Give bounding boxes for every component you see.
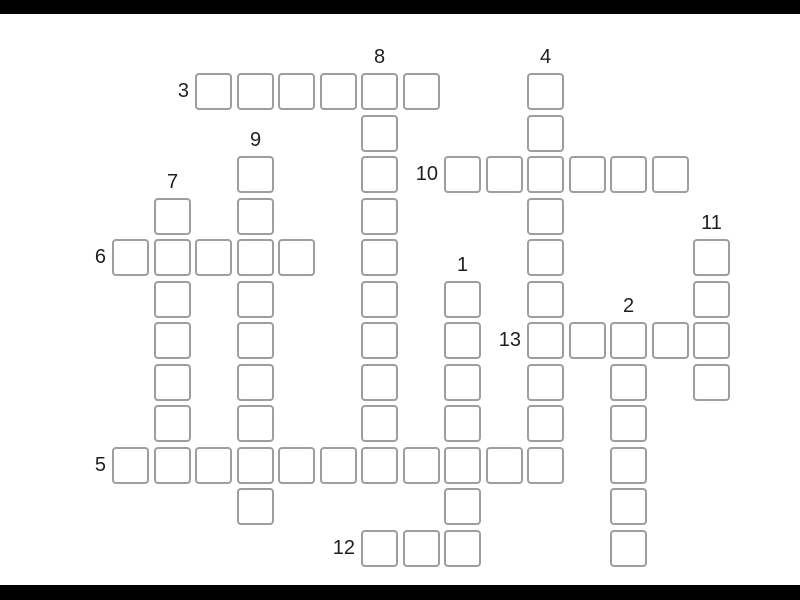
clue-number-label: 3 (153, 73, 189, 110)
clue-number-label: 5 (70, 447, 106, 484)
crossword-cell[interactable] (237, 156, 274, 193)
crossword-cell[interactable] (486, 447, 523, 484)
clue-number-label: 11 (693, 212, 730, 234)
crossword-cell[interactable] (361, 156, 398, 193)
crossword-cell[interactable] (444, 322, 481, 359)
crossword-board: 38491076111132512 (0, 0, 800, 600)
crossword-cell[interactable] (237, 198, 274, 235)
crossword-cell[interactable] (278, 239, 315, 276)
clue-number-label: 7 (154, 171, 191, 193)
crossword-cell[interactable] (361, 322, 398, 359)
crossword-cell[interactable] (154, 239, 191, 276)
crossword-cell[interactable] (237, 322, 274, 359)
clue-number-label: 4 (527, 46, 564, 68)
crossword-cell[interactable] (610, 488, 647, 525)
crossword-cell[interactable] (403, 73, 440, 110)
crossword-cell[interactable] (361, 405, 398, 442)
crossword-cell[interactable] (527, 73, 564, 110)
crossword-cell[interactable] (361, 198, 398, 235)
crossword-cell[interactable] (444, 405, 481, 442)
crossword-cell[interactable] (154, 198, 191, 235)
crossword-cell[interactable] (652, 322, 689, 359)
crossword-cell[interactable] (693, 239, 730, 276)
crossword-grid: 38491076111132512 (0, 0, 800, 600)
crossword-cell[interactable] (320, 73, 357, 110)
crossword-cell[interactable] (527, 156, 564, 193)
crossword-cell[interactable] (652, 156, 689, 193)
crossword-cell[interactable] (154, 447, 191, 484)
crossword-cell[interactable] (444, 488, 481, 525)
clue-number-label: 6 (70, 239, 106, 276)
crossword-cell[interactable] (444, 281, 481, 318)
crossword-cell[interactable] (361, 447, 398, 484)
crossword-cell[interactable] (154, 405, 191, 442)
crossword-cell[interactable] (154, 281, 191, 318)
crossword-cell[interactable] (154, 364, 191, 401)
crossword-cell[interactable] (237, 447, 274, 484)
crossword-cell[interactable] (527, 281, 564, 318)
crossword-cell[interactable] (320, 447, 357, 484)
crossword-cell[interactable] (527, 364, 564, 401)
letterbox-bottom (0, 585, 800, 600)
crossword-cell[interactable] (195, 447, 232, 484)
crossword-cell[interactable] (195, 239, 232, 276)
crossword-cell[interactable] (278, 73, 315, 110)
clue-number-label: 9 (237, 129, 274, 151)
crossword-cell[interactable] (486, 156, 523, 193)
crossword-cell[interactable] (361, 364, 398, 401)
crossword-cell[interactable] (444, 156, 481, 193)
crossword-cell[interactable] (610, 322, 647, 359)
clue-number-label: 2 (610, 295, 647, 317)
crossword-cell[interactable] (237, 239, 274, 276)
crossword-cell[interactable] (237, 281, 274, 318)
crossword-cell[interactable] (112, 239, 149, 276)
clue-number-label: 12 (319, 530, 355, 567)
crossword-cell[interactable] (527, 115, 564, 152)
crossword-cell[interactable] (693, 322, 730, 359)
clue-number-label: 8 (361, 46, 398, 68)
crossword-cell[interactable] (527, 198, 564, 235)
crossword-cell[interactable] (569, 156, 606, 193)
crossword-cell[interactable] (361, 239, 398, 276)
crossword-cell[interactable] (569, 322, 606, 359)
crossword-cell[interactable] (610, 364, 647, 401)
letterbox-top (0, 0, 800, 14)
crossword-cell[interactable] (237, 73, 274, 110)
clue-number-label: 1 (444, 254, 481, 276)
crossword-cell[interactable] (444, 447, 481, 484)
crossword-cell[interactable] (610, 447, 647, 484)
crossword-cell[interactable] (610, 405, 647, 442)
crossword-cell[interactable] (693, 281, 730, 318)
crossword-cell[interactable] (444, 364, 481, 401)
crossword-cell[interactable] (527, 322, 564, 359)
crossword-cell[interactable] (361, 530, 398, 567)
crossword-cell[interactable] (112, 447, 149, 484)
crossword-cell[interactable] (693, 364, 730, 401)
crossword-cell[interactable] (278, 447, 315, 484)
crossword-cell[interactable] (237, 364, 274, 401)
clue-number-label: 13 (485, 322, 521, 359)
crossword-cell[interactable] (154, 322, 191, 359)
crossword-cell[interactable] (195, 73, 232, 110)
crossword-cell[interactable] (527, 405, 564, 442)
crossword-cell[interactable] (444, 530, 481, 567)
crossword-cell[interactable] (237, 488, 274, 525)
crossword-cell[interactable] (610, 156, 647, 193)
crossword-cell[interactable] (361, 115, 398, 152)
crossword-cell[interactable] (527, 447, 564, 484)
crossword-cell[interactable] (361, 281, 398, 318)
crossword-cell[interactable] (403, 530, 440, 567)
crossword-cell[interactable] (527, 239, 564, 276)
crossword-cell[interactable] (403, 447, 440, 484)
crossword-cell[interactable] (361, 73, 398, 110)
clue-number-label: 10 (402, 156, 438, 193)
crossword-cell[interactable] (610, 530, 647, 567)
crossword-cell[interactable] (237, 405, 274, 442)
